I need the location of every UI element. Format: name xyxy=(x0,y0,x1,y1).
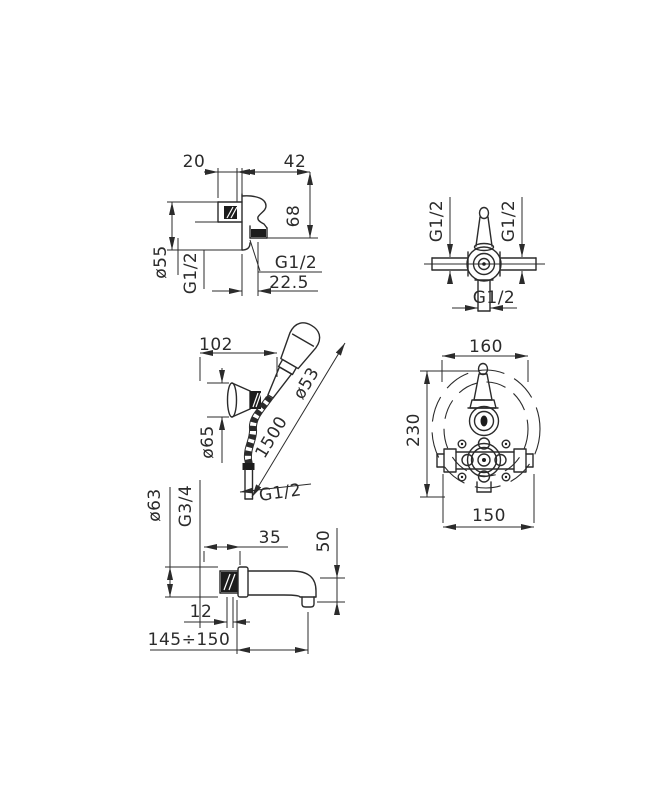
dim-label-230: 230 xyxy=(404,413,424,447)
thread-label-inlet: G1/2 xyxy=(181,252,201,295)
dim-label-50: 50 xyxy=(314,530,334,553)
valve-lever-knob xyxy=(480,208,489,219)
thermostat-drawing: 160 230 150 xyxy=(404,337,540,527)
hose-nut xyxy=(243,463,255,470)
dim-label-20: 20 xyxy=(183,152,206,172)
dim-label-68: 68 xyxy=(284,205,304,228)
dim-label-12: 12 xyxy=(190,602,213,622)
thermostat-lever-knob xyxy=(479,364,488,375)
thread-label-outlet: G1/2 xyxy=(275,253,318,273)
hand-shower-drawing: 102 ø53 1500 ø65 G1/2 xyxy=(198,318,345,506)
dim-label-dia55: ø55 xyxy=(151,245,171,279)
dim-label-dia63: ø63 xyxy=(145,488,165,522)
dim-label-160: 160 xyxy=(469,337,503,357)
dim-label-dia65: ø65 xyxy=(198,425,218,459)
recess-outline xyxy=(432,370,540,488)
dim-label-reach: 145÷150 xyxy=(148,630,231,650)
spout-drawing: ø63 G3/4 35 50 12 145÷150 xyxy=(145,480,345,654)
dim-label-35: 35 xyxy=(259,528,282,548)
dim-label-22-5: 22.5 xyxy=(269,273,309,293)
thread-label-right: G1/2 xyxy=(499,200,519,243)
thread-label-bottom: G1/2 xyxy=(473,288,516,308)
dim-label-102: 102 xyxy=(199,335,233,355)
dim-label-150: 150 xyxy=(472,506,506,526)
outlet-thread xyxy=(251,229,266,237)
bracket-flange xyxy=(228,383,237,417)
bath-mixer-dimension-drawing: 20 42 68 ø55 G1/2 G1/2 22.5 xyxy=(0,0,666,800)
thread-label-spout: G3/4 xyxy=(176,485,196,528)
wall-union-drawing: 20 42 68 ø55 G1/2 G1/2 22.5 xyxy=(151,152,322,296)
stop-valve-drawing: G1/2 G1/2 G1/2 xyxy=(424,197,545,311)
dim-label-42: 42 xyxy=(284,152,307,172)
thread-label-left: G1/2 xyxy=(427,200,447,243)
thread-label-hose: G1/2 xyxy=(258,480,303,506)
technical-drawing-page: 20 42 68 ø55 G1/2 G1/2 22.5 xyxy=(0,0,666,800)
